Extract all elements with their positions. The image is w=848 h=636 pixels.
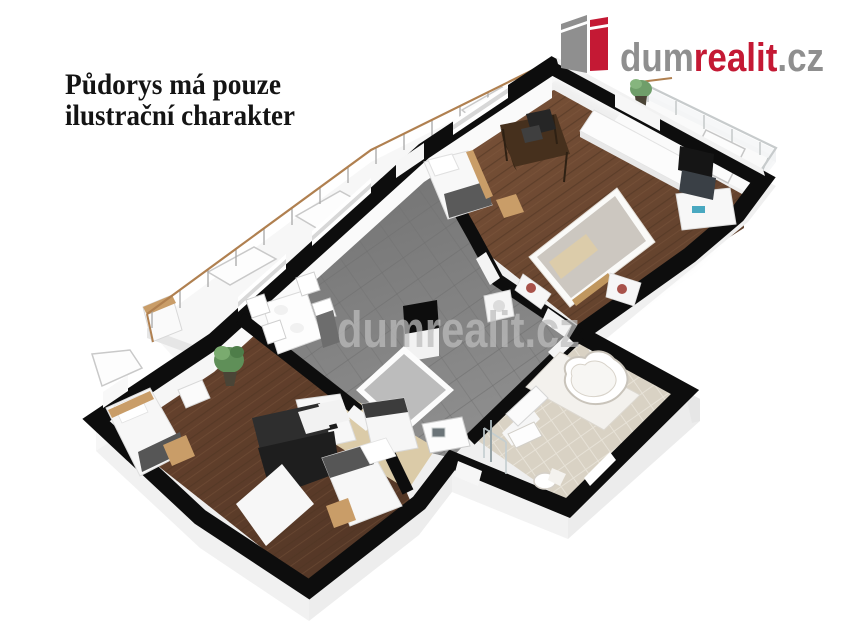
svg-text:dumrealit.cz: dumrealit.cz (620, 36, 824, 80)
svg-text:dumrealit.cz: dumrealit.cz (337, 301, 580, 358)
svg-text:ilustrační charakter: ilustrační charakter (65, 99, 295, 132)
svg-text:Půdorys má pouze: Půdorys má pouze (65, 68, 281, 101)
